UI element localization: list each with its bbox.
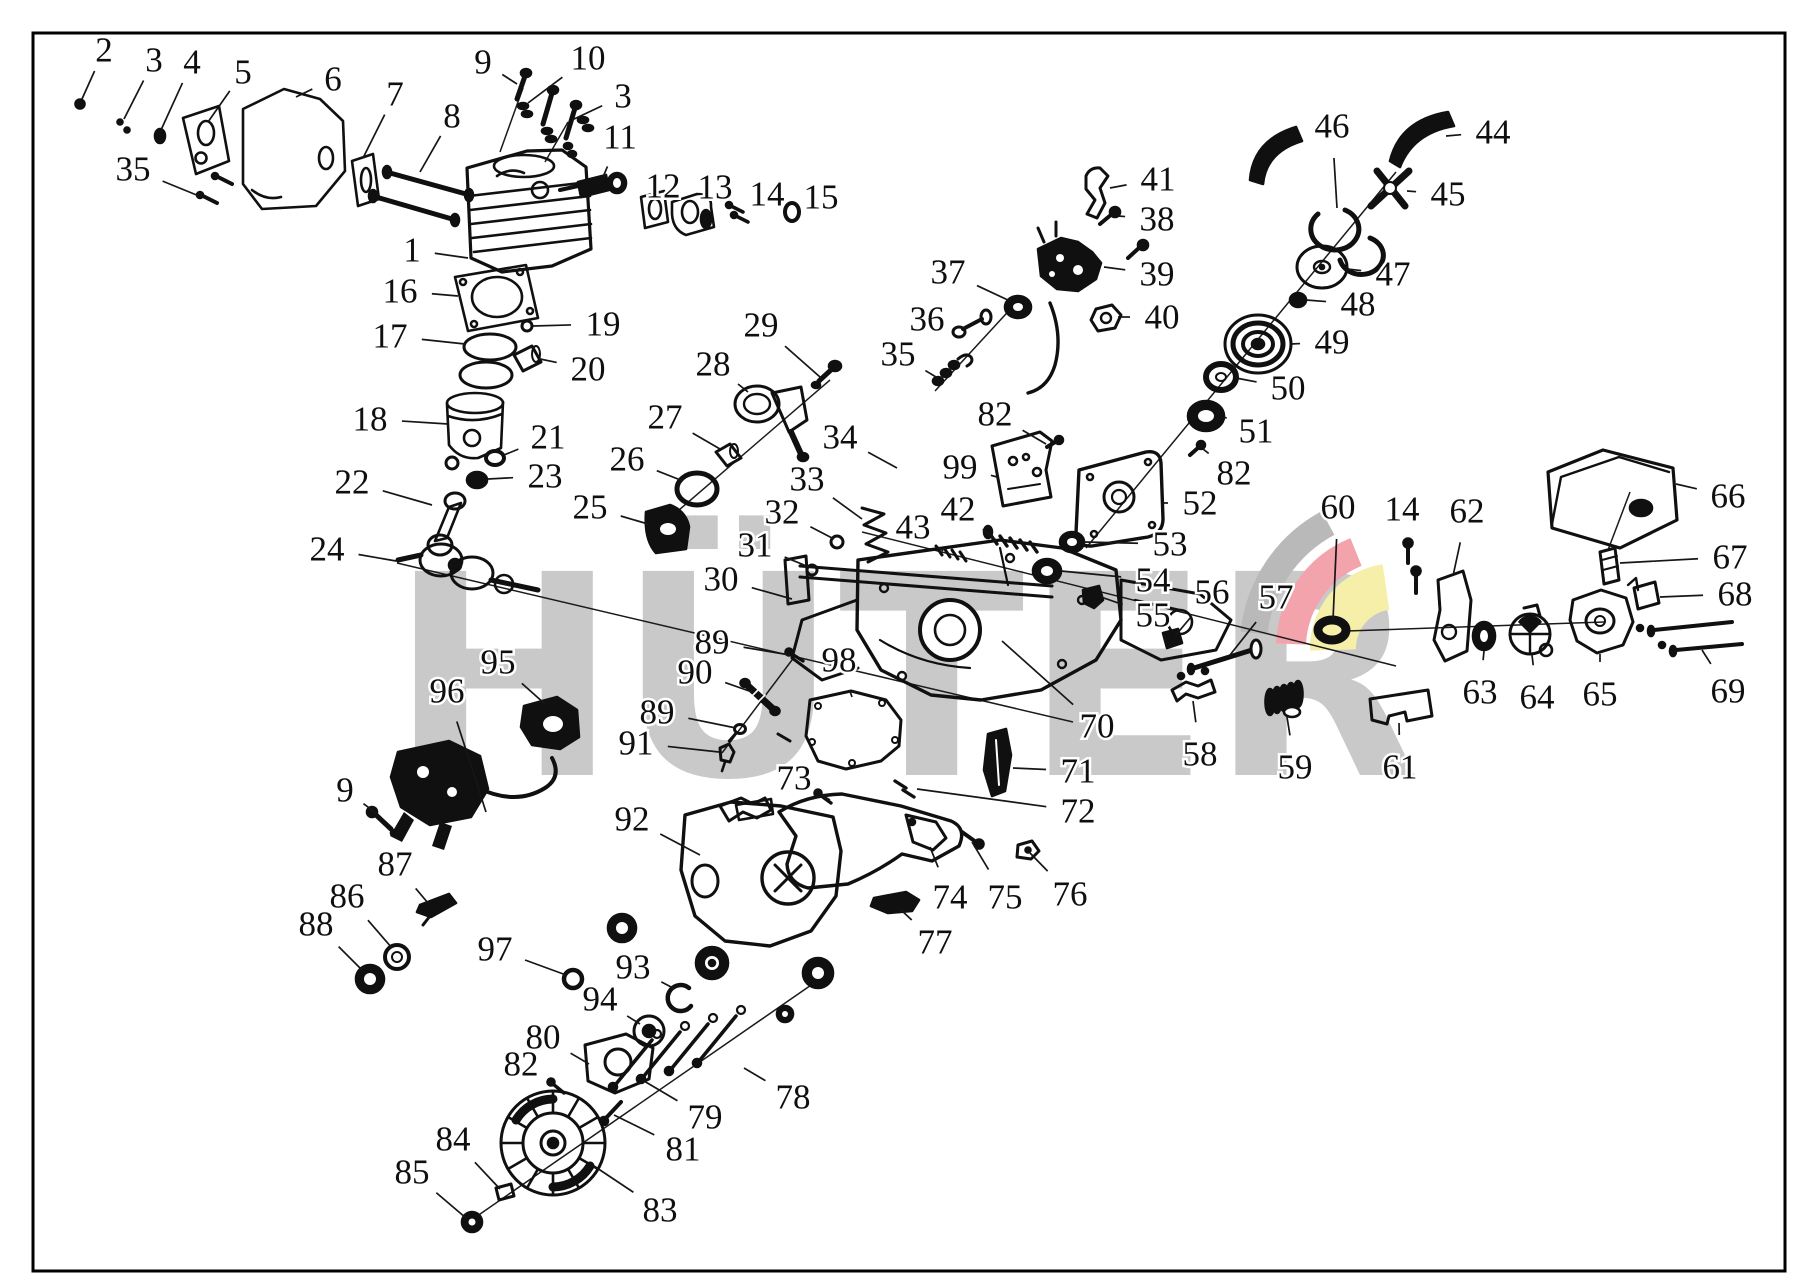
part-label-63: 63	[1463, 673, 1498, 712]
part-label-99: 99	[943, 448, 978, 487]
part-label-58: 58	[1183, 735, 1218, 774]
part-label-41: 41	[1141, 160, 1176, 199]
part-label-25: 25	[573, 488, 608, 527]
part-label-37: 37	[931, 253, 966, 292]
part-label-61: 61	[1383, 748, 1418, 787]
part-label-86: 86	[330, 877, 365, 916]
part-label-52: 52	[1183, 484, 1218, 523]
leader-line-4	[161, 83, 182, 130]
part-label-42: 42	[941, 490, 976, 529]
part-label-85: 85	[395, 1153, 430, 1192]
part-label-70: 70	[1080, 707, 1115, 746]
assembly-axis-line	[1608, 492, 1630, 550]
part-label-69: 69	[1711, 672, 1746, 711]
leader-line-88	[339, 947, 362, 970]
part-label-10: 10	[571, 39, 606, 78]
leader-line-45	[1407, 191, 1416, 192]
leader-line-78	[744, 1068, 765, 1081]
part-label-17: 17	[373, 317, 408, 356]
part-label-20: 20	[571, 350, 606, 389]
part-label-46: 46	[1315, 107, 1350, 146]
part-label-9: 9	[336, 771, 354, 810]
leader-line-22	[383, 491, 432, 505]
part-label-38: 38	[1140, 200, 1175, 239]
part-label-56: 56	[1195, 573, 1230, 612]
part-label-71: 71	[1061, 752, 1096, 791]
leader-line-76	[1030, 853, 1048, 871]
leader-line-7	[363, 115, 385, 158]
leader-line-46	[1334, 158, 1337, 208]
part-label-55: 55	[1136, 596, 1171, 635]
part-label-11: 11	[603, 118, 637, 157]
part-label-9: 9	[474, 43, 492, 82]
part-label-90: 90	[678, 653, 713, 692]
part-label-49: 49	[1315, 323, 1350, 362]
leader-line-27	[693, 433, 720, 449]
part-label-16: 16	[383, 272, 418, 311]
part-label-51: 51	[1239, 412, 1274, 451]
part-label-3: 3	[145, 41, 163, 80]
part-label-91: 91	[619, 724, 654, 763]
leader-line-34	[868, 452, 897, 468]
leader-line-38	[1118, 216, 1125, 217]
part-label-34: 34	[823, 418, 858, 457]
part-label-60: 60	[1321, 488, 1356, 527]
chain-guide-plate-drawing	[992, 432, 1063, 506]
part-label-84: 84	[436, 1120, 471, 1159]
part-label-93: 93	[616, 948, 651, 987]
leader-line-1	[435, 253, 468, 258]
leader-line-67	[1620, 559, 1698, 563]
part-label-28: 28	[696, 345, 731, 384]
leader-line-44	[1446, 135, 1461, 136]
clutch-cover-drawing	[548, 799, 842, 1125]
part-label-14: 14	[1385, 490, 1420, 529]
part-label-78: 78	[776, 1078, 811, 1117]
part-label-82: 82	[978, 395, 1013, 434]
leader-line-48	[1306, 300, 1326, 302]
part-label-73: 73	[777, 759, 812, 798]
part-label-62: 62	[1450, 492, 1485, 531]
part-label-75: 75	[988, 878, 1023, 917]
part-label-6: 6	[324, 60, 342, 99]
part-label-1: 1	[403, 231, 421, 270]
part-label-3: 3	[614, 77, 632, 116]
part-label-50: 50	[1271, 369, 1306, 408]
leader-line-37	[977, 286, 1010, 301]
part-label-96: 96	[430, 672, 465, 711]
leader-line-83	[594, 1166, 633, 1192]
part-label-97: 97	[478, 930, 513, 969]
leader-line-93	[661, 982, 673, 988]
leader-line-35	[925, 371, 936, 377]
part-label-4: 4	[183, 43, 201, 82]
part-label-29: 29	[744, 306, 779, 345]
part-label-82: 82	[504, 1045, 539, 1084]
part-label-13: 13	[698, 168, 733, 207]
part-label-39: 39	[1140, 255, 1175, 294]
part-label-43: 43	[896, 508, 931, 547]
part-label-22: 22	[335, 463, 370, 502]
part-label-31: 31	[738, 526, 773, 565]
leader-line-19	[533, 325, 571, 326]
leader-line-97	[525, 960, 566, 975]
leader-line-41	[1110, 185, 1127, 188]
part-label-88: 88	[299, 905, 334, 944]
part-label-72: 72	[1061, 792, 1096, 831]
leader-line-17	[422, 339, 465, 344]
leader-line-16	[432, 294, 458, 296]
part-label-18: 18	[353, 400, 388, 439]
part-label-53: 53	[1153, 525, 1188, 564]
part-label-87: 87	[378, 845, 413, 884]
leader-line-69	[1702, 650, 1711, 664]
part-label-36: 36	[910, 300, 945, 339]
leader-line-8	[420, 136, 441, 172]
part-label-77: 77	[918, 923, 953, 962]
part-label-35: 35	[881, 335, 916, 374]
part-label-83: 83	[643, 1191, 678, 1230]
cylinder-head-drawing	[467, 69, 799, 272]
part-label-74: 74	[933, 878, 968, 917]
part-label-5: 5	[234, 53, 252, 92]
part-label-82: 82	[1217, 454, 1252, 493]
diagram-canvas: HÜTER	[0, 0, 1809, 1283]
part-label-19: 19	[586, 305, 621, 344]
exploded-parts-diagram: HÜTER	[0, 0, 1809, 1283]
leader-line-18	[402, 421, 448, 424]
part-label-66: 66	[1711, 477, 1746, 516]
part-label-26: 26	[610, 440, 645, 479]
leader-line-26	[657, 471, 683, 481]
leader-line-64	[1532, 655, 1533, 665]
part-label-24: 24	[310, 530, 345, 569]
leader-line-87	[416, 888, 428, 903]
part-label-76: 76	[1053, 875, 1088, 914]
leader-line-66	[1676, 484, 1697, 489]
part-label-35: 35	[116, 150, 151, 189]
part-label-92: 92	[615, 800, 650, 839]
leader-line-86	[368, 920, 392, 948]
part-label-48: 48	[1341, 285, 1376, 324]
leader-line-9	[502, 74, 517, 84]
part-label-81: 81	[666, 1130, 701, 1169]
part-label-23: 23	[528, 457, 563, 496]
leader-line-39	[1104, 267, 1125, 270]
leader-line-23	[488, 478, 513, 479]
part-label-95: 95	[481, 643, 516, 682]
leader-line-29	[785, 346, 820, 377]
part-label-94: 94	[583, 980, 618, 1019]
leader-line-50	[1236, 378, 1257, 382]
leader-line-82	[1203, 449, 1209, 453]
part-label-47: 47	[1376, 255, 1411, 294]
leader-line-2	[82, 71, 95, 99]
leader-line-3	[124, 81, 144, 119]
part-label-98: 98	[822, 641, 857, 680]
part-label-67: 67	[1713, 538, 1748, 577]
part-label-8: 8	[443, 97, 461, 136]
part-label-30: 30	[704, 560, 739, 599]
leader-line-5	[208, 91, 230, 122]
leader-line-51	[1224, 417, 1227, 418]
part-label-59: 59	[1278, 748, 1313, 787]
part-label-54: 54	[1136, 561, 1171, 600]
leader-line-35	[163, 181, 199, 196]
part-label-40: 40	[1145, 298, 1180, 337]
leader-line-21	[504, 449, 518, 455]
part-label-65: 65	[1583, 675, 1618, 714]
part-label-68: 68	[1718, 575, 1753, 614]
part-label-7: 7	[386, 75, 404, 114]
part-label-12: 12	[646, 167, 681, 206]
leader-line-63	[1483, 651, 1484, 660]
leader-line-81	[614, 1115, 654, 1135]
part-label-27: 27	[648, 398, 683, 437]
part-label-57: 57	[1259, 578, 1294, 617]
leader-line-68	[1660, 595, 1703, 597]
part-label-45: 45	[1431, 175, 1466, 214]
part-label-64: 64	[1520, 678, 1555, 717]
part-label-44: 44	[1476, 113, 1511, 152]
part-label-14: 14	[750, 175, 785, 214]
leader-line-20	[540, 359, 557, 362]
part-label-21: 21	[531, 418, 566, 457]
leader-line-84	[475, 1162, 500, 1189]
part-label-2: 2	[95, 31, 113, 70]
part-label-15: 15	[804, 178, 839, 217]
leader-line-85	[436, 1193, 466, 1218]
